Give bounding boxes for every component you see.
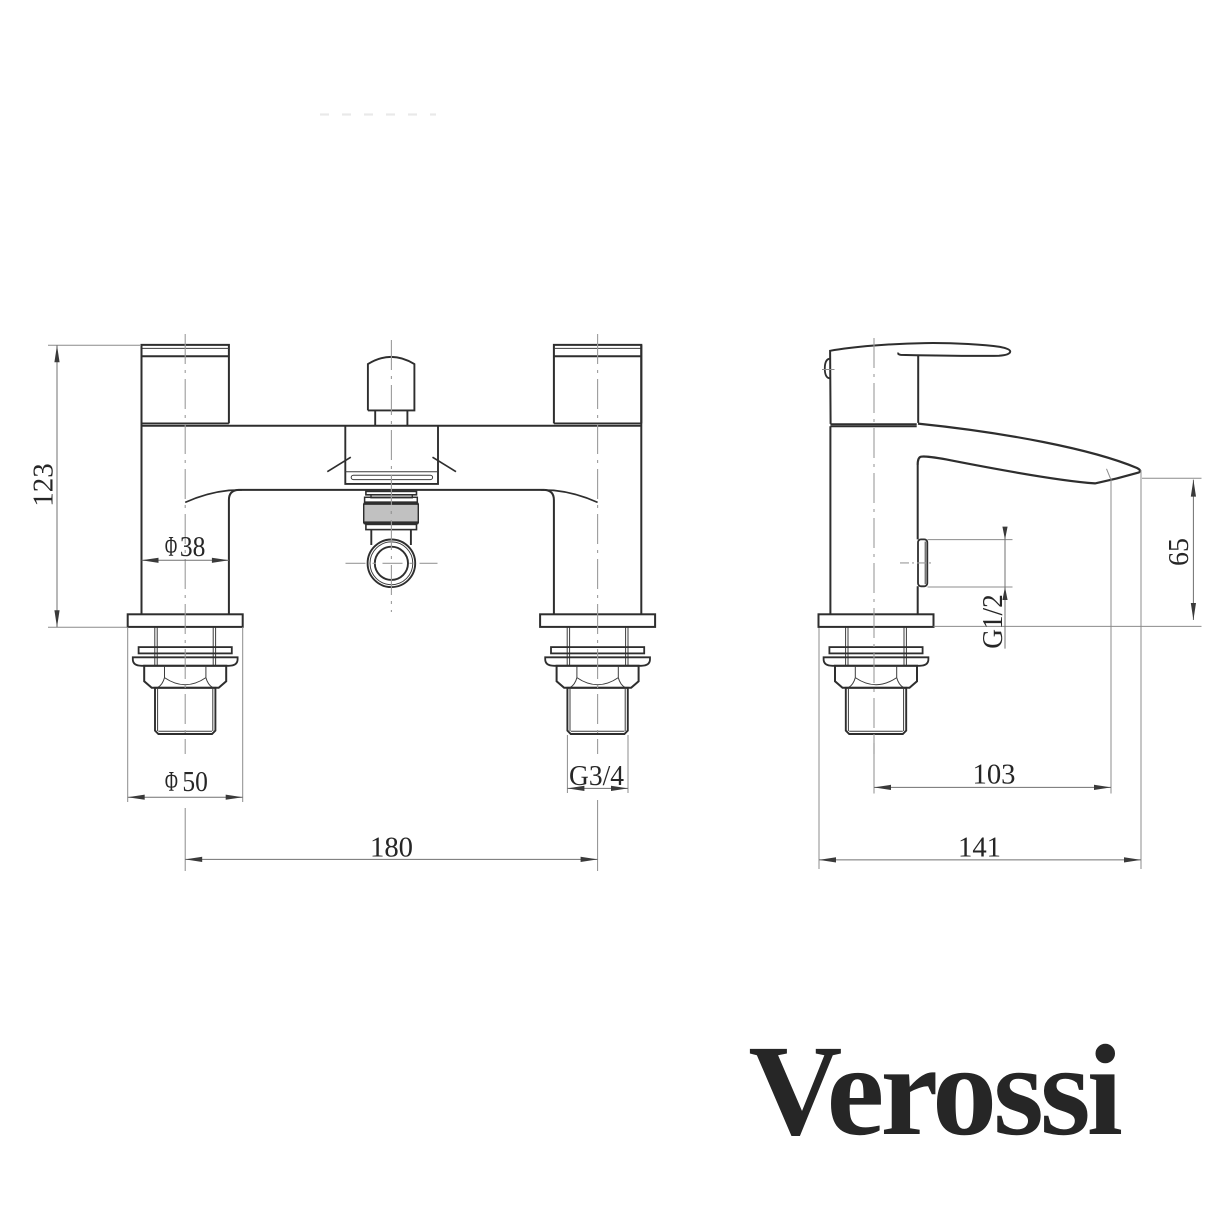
svg-text:50: 50 <box>182 767 208 798</box>
svg-text:G1/2: G1/2 <box>978 594 1009 649</box>
svg-text:180: 180 <box>370 833 413 864</box>
svg-text:65: 65 <box>1164 538 1195 566</box>
svg-text:103: 103 <box>973 760 1016 791</box>
svg-text:38: 38 <box>180 532 206 563</box>
svg-text:Φ: Φ <box>165 767 178 798</box>
svg-text:141: 141 <box>958 833 1001 864</box>
svg-text:123: 123 <box>29 463 60 507</box>
svg-text:G3/4: G3/4 <box>569 761 624 792</box>
svg-text:Φ: Φ <box>165 532 177 563</box>
svg-text:Verossi: Verossi <box>748 1019 1121 1163</box>
